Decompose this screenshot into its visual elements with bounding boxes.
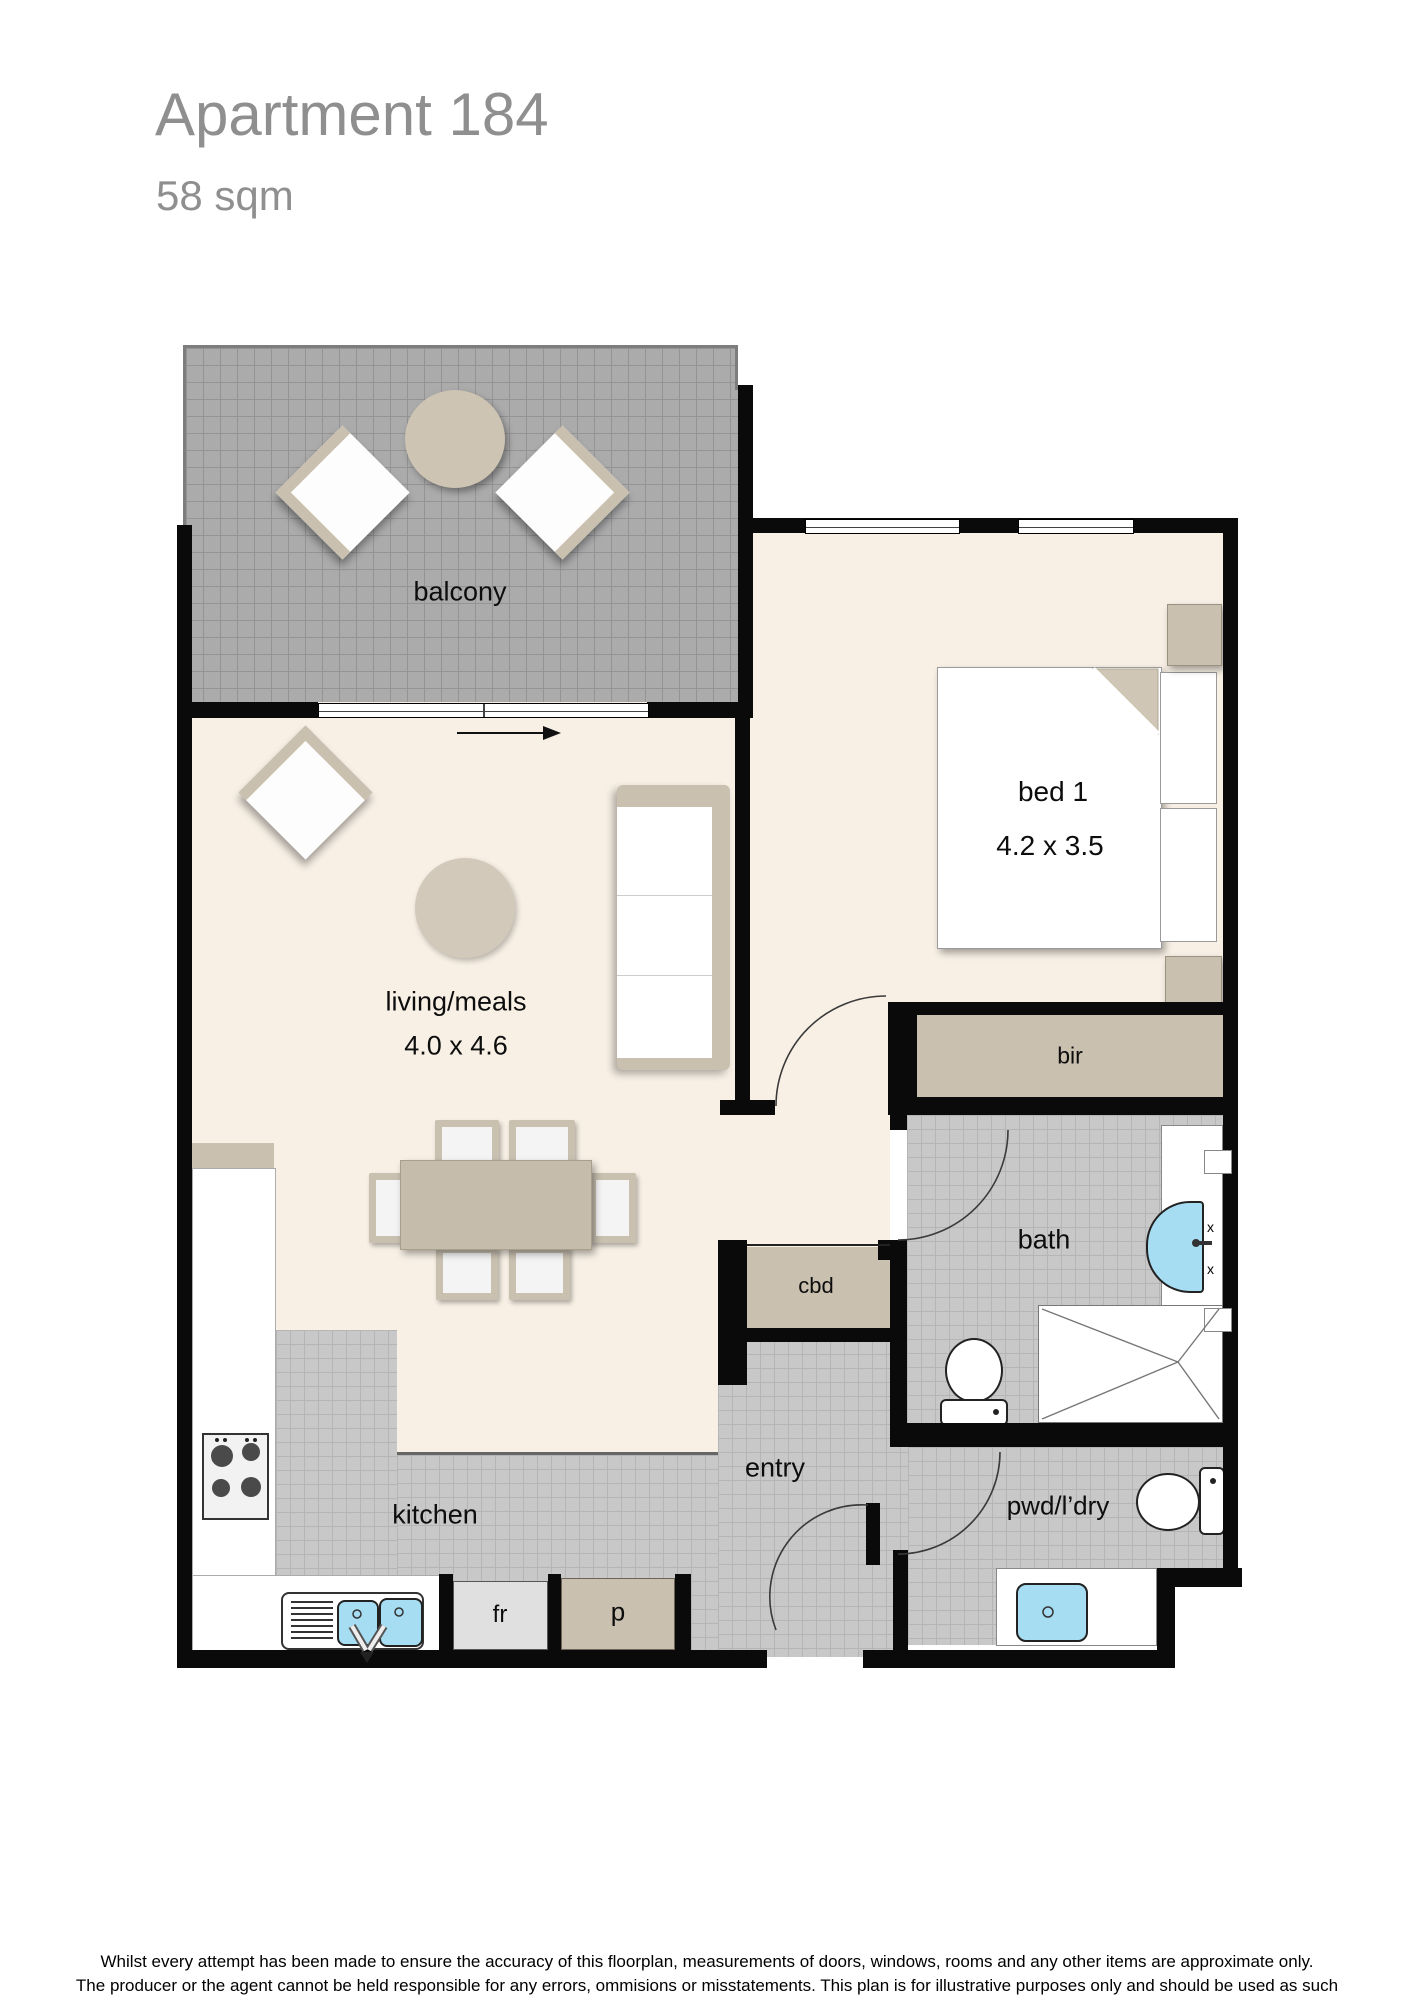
annotation-overlay: x x [0, 0, 1414, 2000]
tap-mark: x [1207, 1261, 1214, 1277]
label-pantry: p [611, 1597, 625, 1628]
room-label-entry: entry [745, 1453, 805, 1484]
label-cbd: cbd [798, 1273, 833, 1299]
floorplan-page: Apartment 184 58 sqm [0, 0, 1414, 2000]
room-label-bath: bath [1018, 1225, 1071, 1256]
entry-door-arc [770, 1505, 868, 1630]
room-dims-living: 4.0 x 4.6 [404, 1031, 508, 1062]
room-label-pwd: pwd/l’dry [1007, 1491, 1110, 1522]
room-label-bed1: bed 1 [1018, 776, 1088, 808]
bath-door-arc [898, 1130, 1008, 1240]
basin-drain [395, 1608, 403, 1616]
room-label-balcony: balcony [413, 577, 506, 608]
tap-mark: x [1207, 1219, 1214, 1235]
pwd-door-arc [898, 1452, 1000, 1554]
room-dims-bed1: 4.2 x 3.5 [996, 830, 1103, 862]
room-label-living: living/meals [385, 987, 526, 1018]
bedroom-door-arc [776, 996, 886, 1106]
kitchen-tap [352, 1626, 384, 1663]
room-label-kitchen: kitchen [392, 1500, 478, 1531]
vanity-tap-base [1192, 1239, 1200, 1247]
label-fridge: fr [493, 1601, 508, 1629]
toilet-button [1210, 1478, 1216, 1484]
label-bir: bir [1057, 1043, 1083, 1070]
shower-fall-lines [1042, 1309, 1219, 1419]
basin-drain [353, 1610, 361, 1618]
sliding-arrow-head [543, 726, 561, 740]
toilet-button [993, 1409, 999, 1415]
tub-drain [1043, 1607, 1053, 1617]
